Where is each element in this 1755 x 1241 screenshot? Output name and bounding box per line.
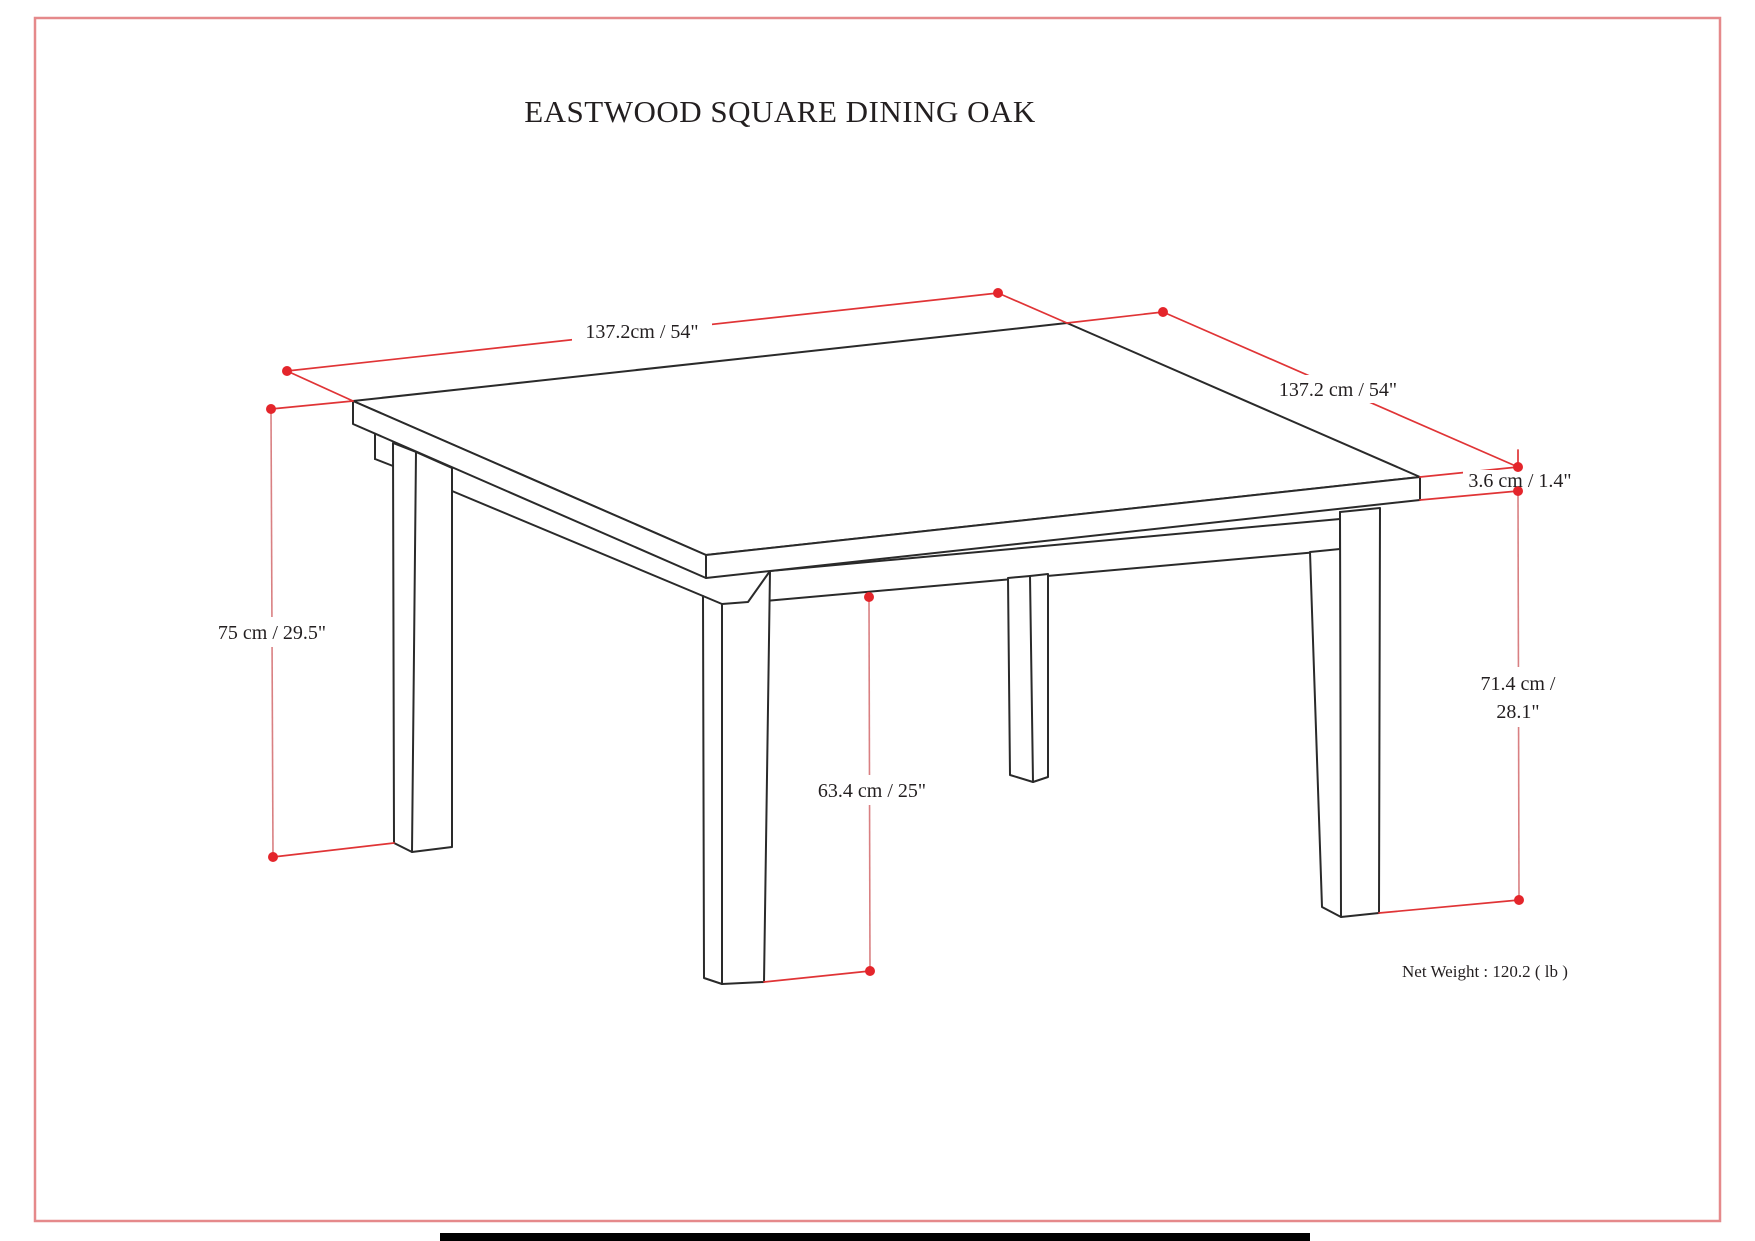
dim-label-leg-height-line1: 71.4 cm / [1481, 673, 1556, 695]
dim-label-clearance-height: 63.4 cm / 25" [818, 780, 926, 802]
front-left-leg [393, 443, 452, 852]
tabletop-surface [353, 323, 1420, 555]
back-leg [1008, 574, 1048, 782]
dim-label-leg-height-line2: 28.1" [1496, 701, 1539, 723]
dim-label-width-right: 137.2 cm / 54" [1279, 379, 1397, 401]
dim-label-top-thickness: 3.6 cm / 1.4" [1468, 470, 1571, 492]
dim-label-overall-height: 75 cm / 29.5" [218, 622, 326, 644]
table-drawing [353, 323, 1420, 984]
right-leg [1310, 508, 1380, 917]
bottom-screen-strip [440, 1233, 1310, 1241]
dimension-drawing: EASTWOOD SQUARE DINING OAK [0, 0, 1755, 1241]
dim-label-width-left: 137.2cm / 54" [585, 321, 698, 343]
front-center-leg [703, 571, 770, 984]
table-top [353, 323, 1420, 578]
page-title: EASTWOOD SQUARE DINING OAK [524, 94, 1036, 129]
net-weight-note: Net Weight : 120.2 ( lb ) [1402, 962, 1568, 981]
